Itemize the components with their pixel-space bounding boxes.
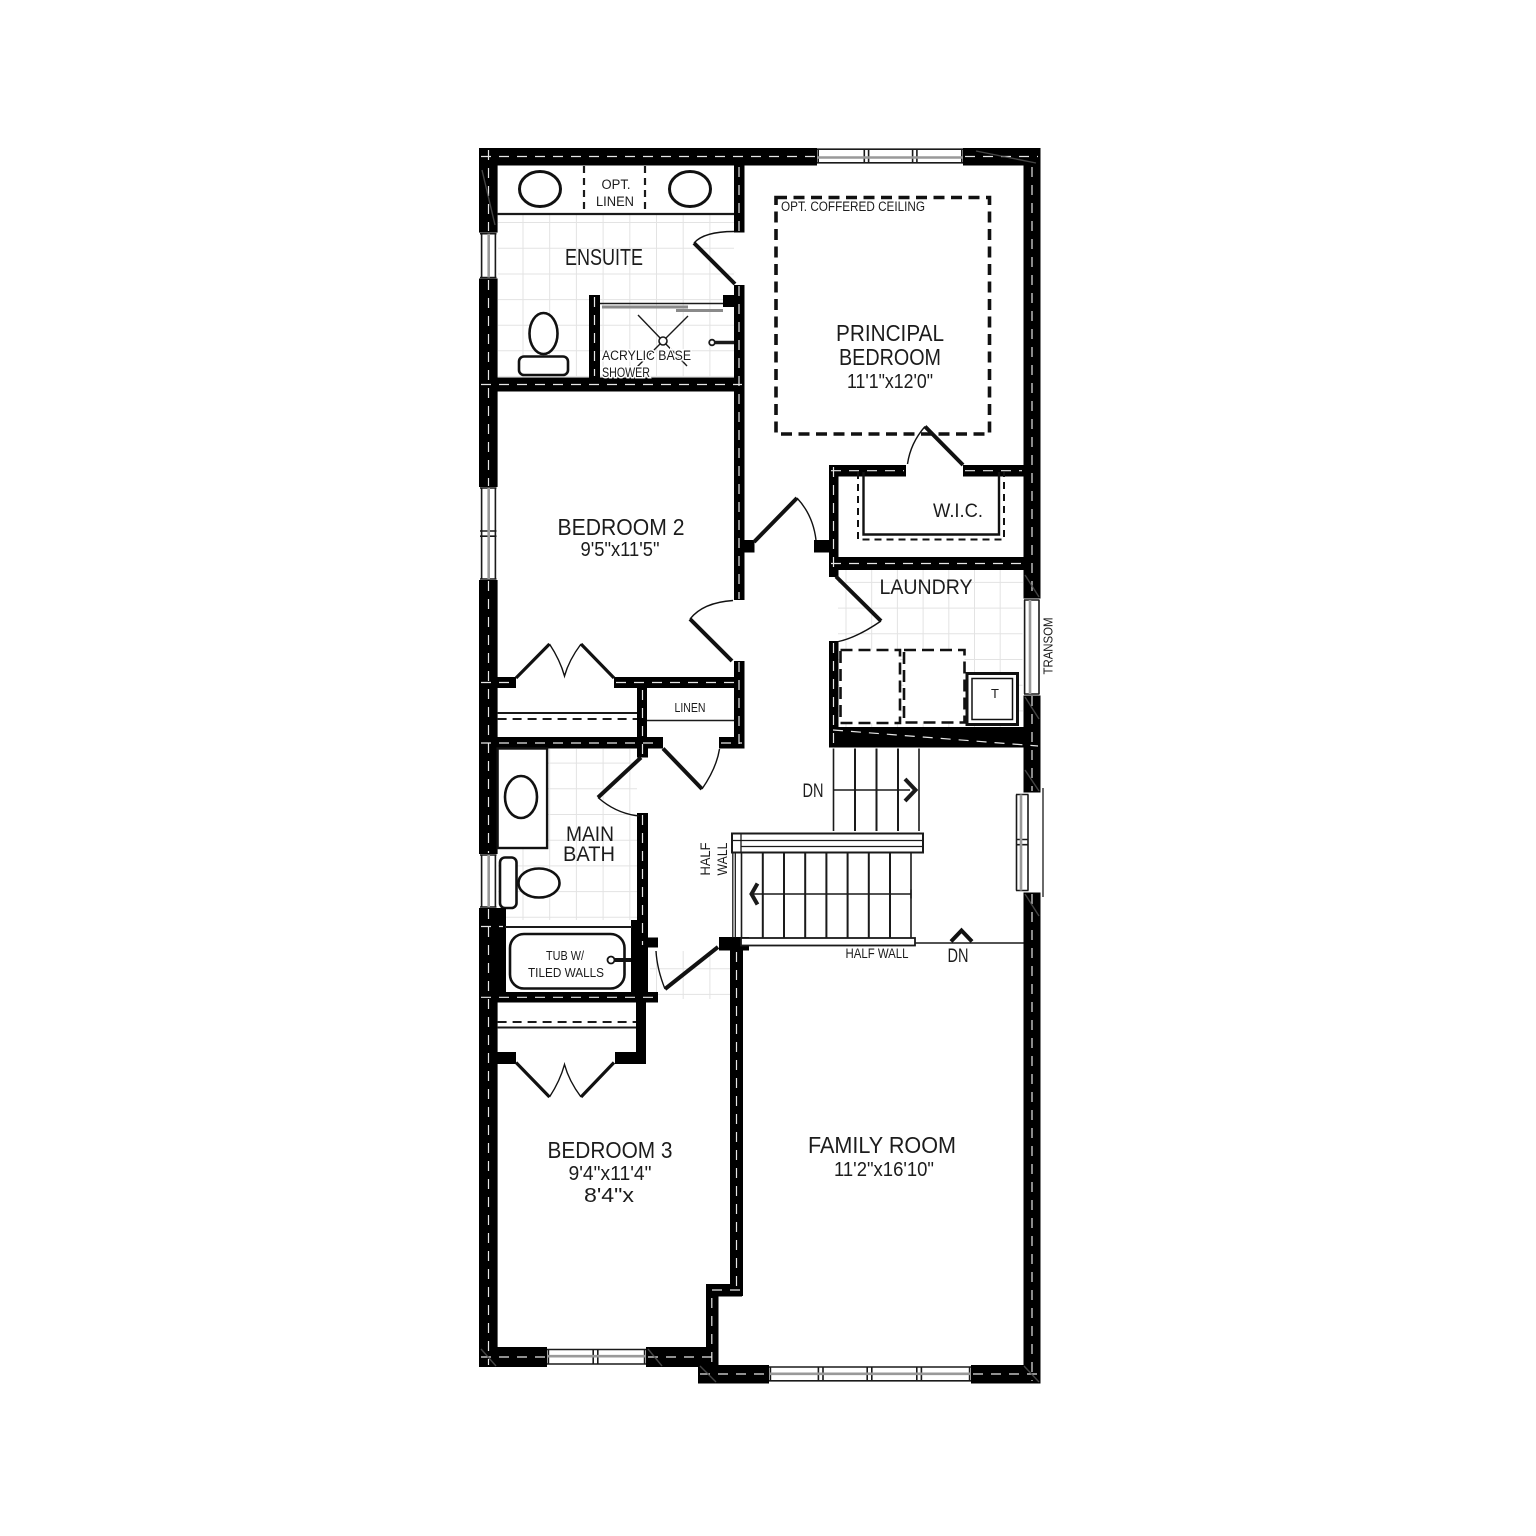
svg-text:9'5"x11'5": 9'5"x11'5" [581,539,660,561]
svg-text:TRANSOM: TRANSOM [1042,618,1056,675]
svg-text:OPT. COFFERED CEILING: OPT. COFFERED CEILING [781,199,925,214]
svg-text:HALF: HALF [698,843,713,876]
svg-text:LAUNDRY: LAUNDRY [880,576,973,599]
svg-text:OPT.: OPT. [602,177,631,192]
svg-text:BEDROOM 3: BEDROOM 3 [548,1137,673,1163]
svg-text:HALF WALL: HALF WALL [846,946,909,961]
svg-text:LINEN: LINEN [596,194,634,209]
svg-text:LINEN: LINEN [675,701,706,715]
svg-text:W.I.C.: W.I.C. [933,501,983,522]
svg-text:11'2"x16'10": 11'2"x16'10" [834,1159,934,1181]
svg-text:BEDROOM 2: BEDROOM 2 [558,514,685,540]
svg-text:DN: DN [948,946,969,967]
svg-text:DN: DN [803,781,824,802]
svg-text:SHOWER: SHOWER [602,365,650,380]
svg-text:8'4"x: 8'4"x [584,1185,634,1207]
svg-text:T: T [991,686,999,701]
svg-text:TILED WALLS: TILED WALLS [528,965,604,980]
svg-text:ENSUITE: ENSUITE [565,244,643,270]
svg-text:11'1"x12'0": 11'1"x12'0" [847,371,933,393]
svg-text:9'4"x11'4": 9'4"x11'4" [569,1163,652,1185]
svg-text:ACRYLIC BASE: ACRYLIC BASE [602,348,691,363]
svg-text:TUB W/: TUB W/ [546,948,584,963]
svg-text:BATH: BATH [563,843,615,866]
svg-text:BEDROOM: BEDROOM [839,344,941,370]
svg-text:WALL: WALL [715,842,730,875]
svg-text:FAMILY ROOM: FAMILY ROOM [808,1132,956,1158]
svg-text:PRINCIPAL: PRINCIPAL [836,320,944,346]
